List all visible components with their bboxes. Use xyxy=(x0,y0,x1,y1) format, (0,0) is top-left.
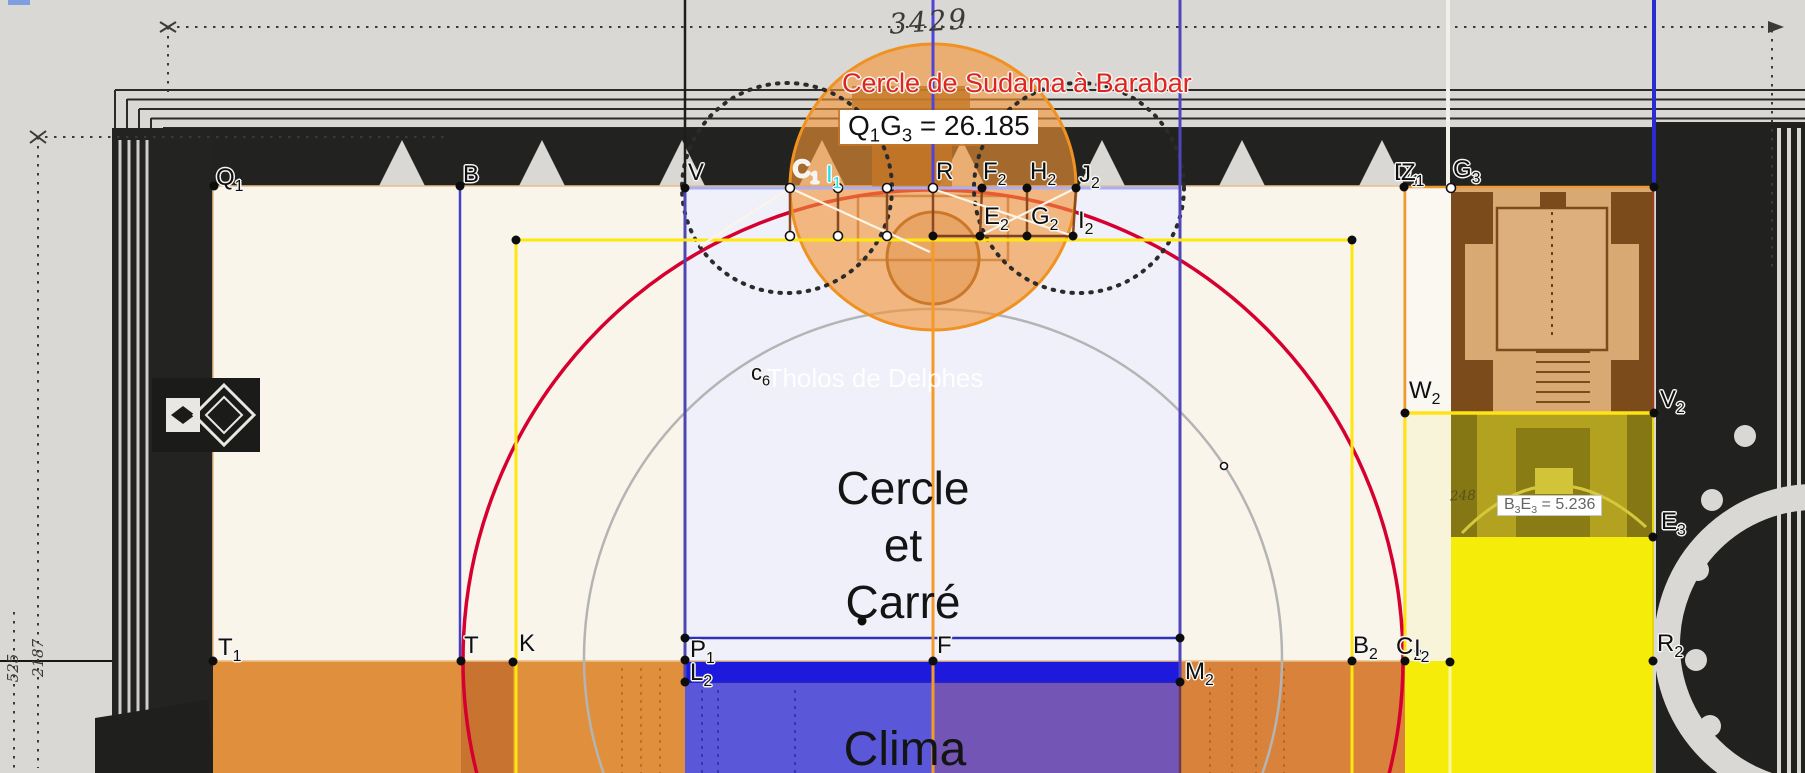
label-I2b[interactable]: I2 xyxy=(1414,637,1429,661)
label-M2[interactable]: M2 xyxy=(1185,660,1214,684)
scan-dimension-525: 525 xyxy=(4,638,22,698)
label-F2[interactable]: F2 xyxy=(983,160,1006,184)
text-line-carre: Carré xyxy=(753,574,1053,631)
label-G2[interactable]: G2 xyxy=(1031,205,1058,229)
label-V2[interactable]: V2 xyxy=(1660,388,1685,412)
label-T1[interactable]: T1 xyxy=(218,636,241,660)
label-W2[interactable]: W2 xyxy=(1409,379,1440,403)
label-F[interactable]: F xyxy=(937,634,952,658)
text-clima[interactable]: Clima xyxy=(755,722,1055,773)
label-R[interactable]: R xyxy=(936,160,953,184)
label-B[interactable]: B xyxy=(463,163,479,187)
text-line-cercle: Cercle xyxy=(753,460,1053,517)
label-B2[interactable]: B2 xyxy=(1353,634,1378,658)
geogebra-canvas[interactable]: Q1BVC1I1RF2H2J2E2G2I2D1Z1G3W2V2E3T1TKP1L… xyxy=(0,0,1805,773)
label-J2[interactable]: J2 xyxy=(1079,163,1100,187)
scan-dimension-3429: 3429 xyxy=(888,2,969,40)
label-E2[interactable]: E2 xyxy=(984,205,1009,229)
label-I2[interactable]: I2 xyxy=(1078,209,1093,233)
label-L2[interactable]: L2 xyxy=(690,661,712,685)
label-Q1[interactable]: Q1 xyxy=(216,166,243,190)
label-H2[interactable]: H2 xyxy=(1030,160,1056,184)
label-Z1[interactable]: Z1 xyxy=(1401,161,1424,185)
measure-q1g3[interactable]: Q1G3 = 26.185 xyxy=(840,110,1038,144)
scan-dimension-248: 248 xyxy=(1450,488,1476,505)
label-I1[interactable]: I1 xyxy=(826,163,841,187)
label-G3[interactable]: G3 xyxy=(1453,158,1480,182)
text-tholos-delphes[interactable]: Tholos de Delphes xyxy=(740,363,1010,394)
measure-b3e3[interactable]: B3E3 = 5.236 xyxy=(1497,495,1602,516)
text-cercle-et-carre[interactable]: Cercle et Carré xyxy=(753,460,1053,631)
label-V[interactable]: V xyxy=(688,161,704,185)
title-cercle-sudama[interactable]: Cercle de Sudama à Barabar xyxy=(842,70,1172,97)
scan-dimension-2187: 2187 xyxy=(29,628,47,688)
text-line-et: et xyxy=(753,517,1053,574)
label-K[interactable]: K xyxy=(519,632,535,656)
label-C1[interactable]: C1 xyxy=(793,158,819,182)
label-R2[interactable]: R2 xyxy=(1657,632,1683,656)
label-E3[interactable]: E3 xyxy=(1661,510,1686,534)
label-T[interactable]: T xyxy=(464,634,479,658)
